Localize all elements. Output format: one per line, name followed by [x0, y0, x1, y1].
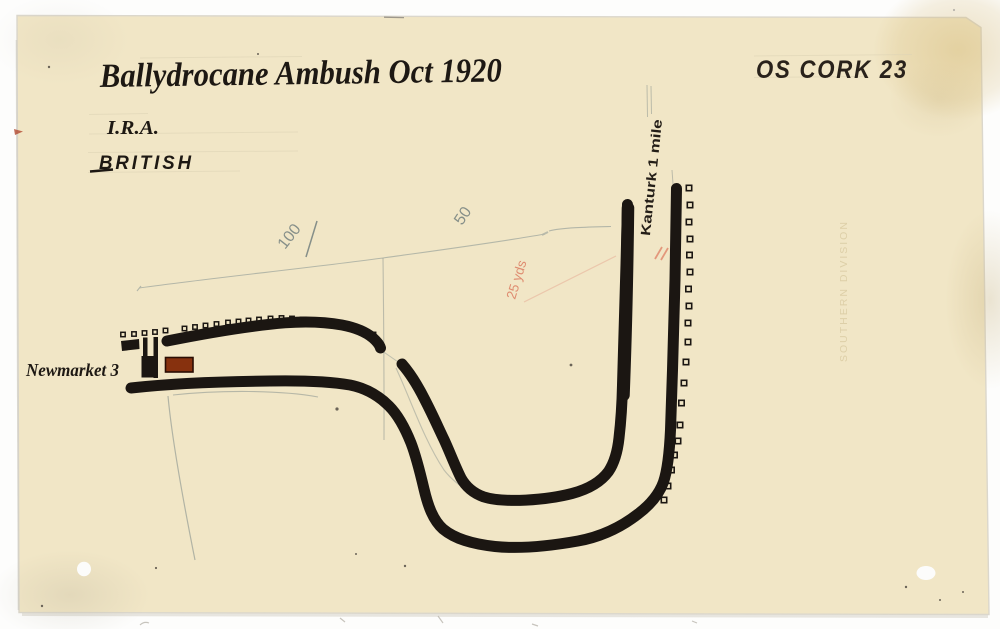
svg-text:OS CORK 23: OS CORK 23	[756, 56, 908, 84]
svg-text:Newmarket 3: Newmarket 3	[25, 360, 119, 380]
svg-text:Ballydrocane Ambush Oct 1920: Ballydrocane Ambush Oct 1920	[99, 52, 502, 95]
svg-text:I.R.A.: I.R.A.	[106, 117, 159, 139]
svg-text:SOUTHERN DIVISION: SOUTHERN DIVISION	[838, 220, 850, 362]
svg-text:BRITISH: BRITISH	[99, 153, 194, 174]
